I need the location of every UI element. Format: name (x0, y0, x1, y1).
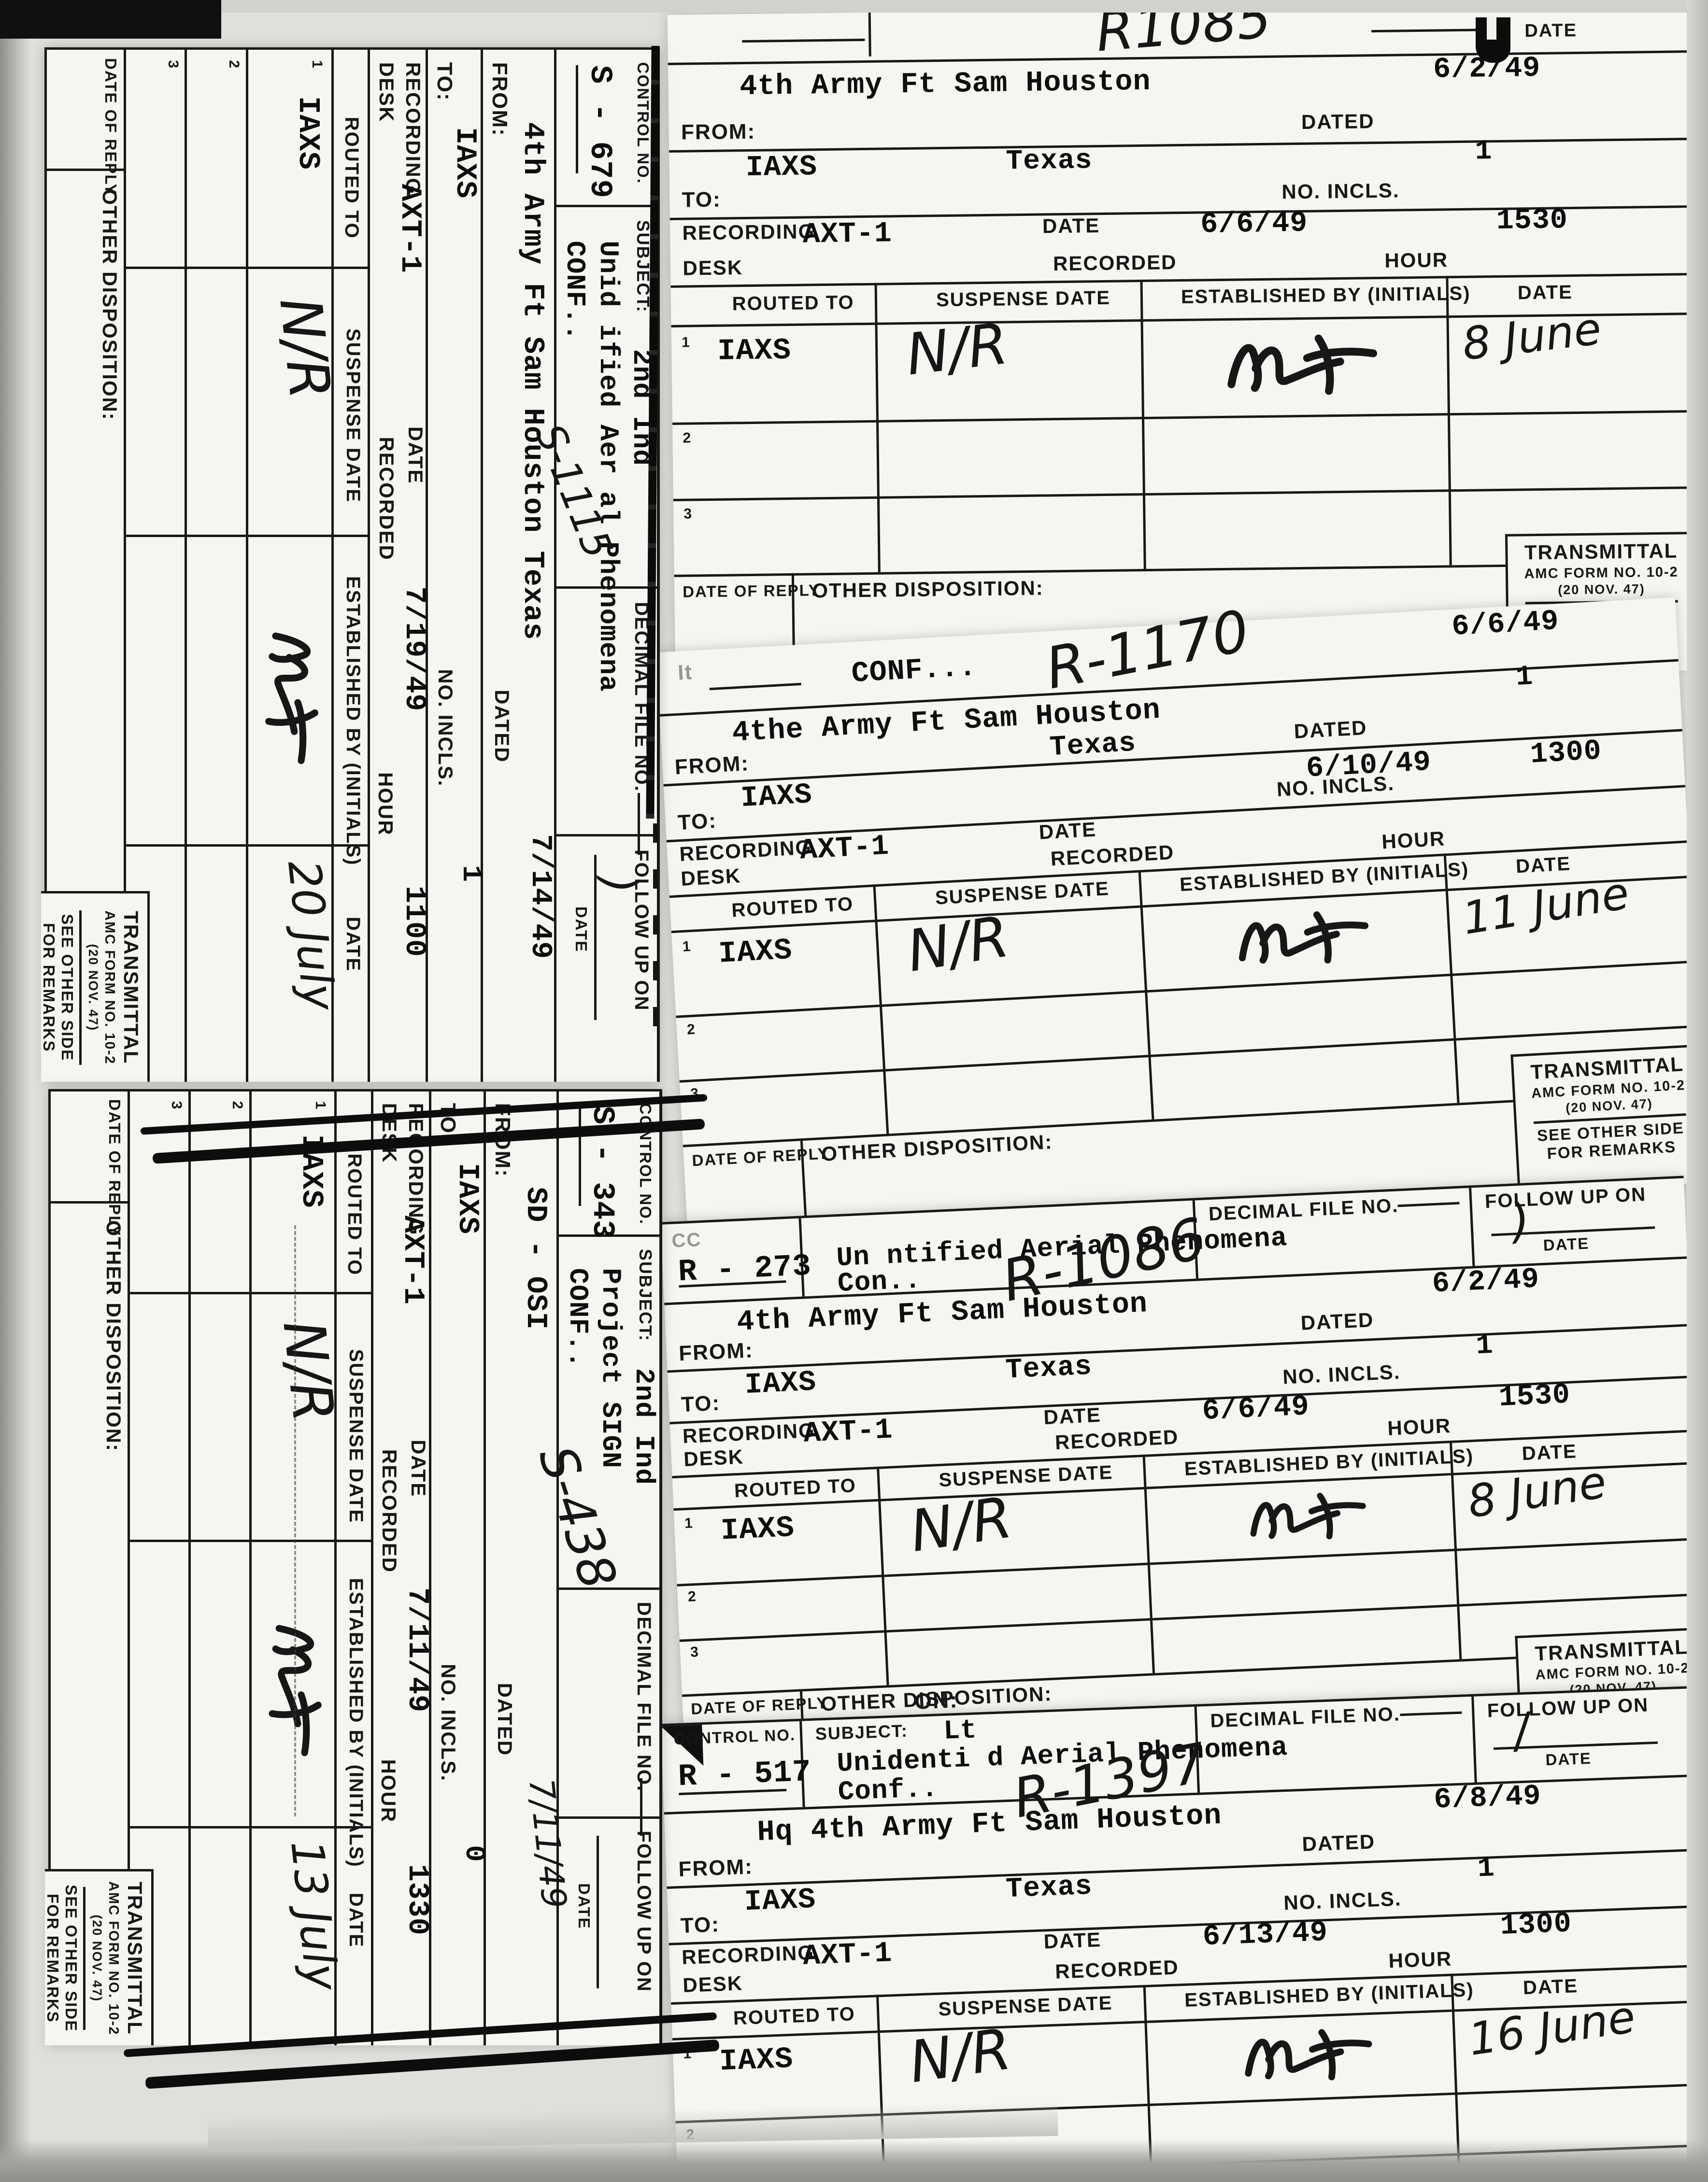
form-row: RECORDINGDESKAXT-1DATERECORDED7/11/49133… (371, 1091, 431, 2045)
signature-initials (1181, 898, 1429, 979)
to-label: TO: (677, 808, 718, 835)
signature-initials (1181, 326, 1427, 407)
routed-to-header: ROUTED TO (732, 292, 854, 315)
top-row-cell-line (1469, 1188, 1475, 1266)
row-number: 1 (682, 938, 692, 955)
rotated-form-wrapper-l2: CONTROL NO.S - 343SUBJECT:2nd IndProject… (48, 1089, 657, 2043)
from-value-line2: Texas (1005, 1871, 1093, 1906)
decimal-file-line (640, 1778, 642, 1836)
subject-line3: CONF... (851, 651, 977, 691)
transmittal-box: TRANSMITTALAMC FORM NO. 10-2(20 NOV. 47)… (1511, 1045, 1707, 1193)
signature-initials (1185, 1482, 1434, 1553)
subject-line3: CONF.. (562, 1268, 593, 1368)
date-of-reply-label: DATE OF REPLY (692, 1144, 830, 1170)
date-label: DATE (1524, 20, 1577, 42)
hour-label: HOUR (1387, 1414, 1452, 1440)
scanned-document-page: R1085DATEFROM:4th Army Ft Sam HoustonDAT… (0, 0, 1708, 2182)
decimal-file-line (1398, 1202, 1459, 1207)
form-row: FROM:4th Army Ft Sam Houston TexasDATED7… (481, 50, 556, 1082)
date-header: DATE (1523, 1975, 1578, 1999)
subject-line2: Unid ified Aer al Phenomena (593, 241, 624, 692)
hour-value: 1300 (1500, 1908, 1572, 1943)
control-no-label: CONTROL NO. (634, 62, 652, 184)
from-label: FROM: (674, 751, 750, 779)
recording-label: RECORDING (681, 1941, 814, 1969)
routed-to-value: IAXS (291, 96, 325, 170)
row-number: 2 (687, 1588, 697, 1605)
control-underline (576, 65, 578, 173)
from-value: 4th Army Ft Sam Houston (740, 66, 1151, 103)
recorded-label: RECORDED (1054, 1956, 1179, 1984)
signature-initials (1185, 2018, 1434, 2094)
band-top-gray (145, 0, 1708, 13)
transmittal-title: TRANSMITTAL (1535, 1635, 1689, 1665)
from-value: Hq 4th Army Ft Sam Houston (756, 1799, 1222, 1849)
routed-to-value: IAXS (718, 933, 793, 971)
date-label: DATE (1545, 1749, 1592, 1769)
hour-label: HOUR (377, 1759, 400, 1823)
established-by-header: ESTABLISHED BY (INITIALS) (342, 576, 364, 866)
from-label: FROM: (681, 120, 756, 145)
transmittal-form-r1: R1085DATEFROM:4th Army Ft Sam HoustonDAT… (668, 2, 1699, 678)
to-label: TO: (680, 1913, 720, 1938)
form-row: ROUTED TOSUSPENSE DATEESTABLISHED BY (IN… (334, 1091, 373, 2045)
row-number: 3 (690, 1644, 699, 1661)
suspense-date-header: SUSPENSE DATE (936, 287, 1110, 311)
suspense-date-header: SUSPENSE DATE (938, 1993, 1113, 2021)
from-label: FROM: (487, 62, 512, 137)
amc-form-number: AMC FORM NO. 10-2 (101, 910, 117, 1064)
form-row: TO:IAXSNO. INCLS.0 (429, 1091, 486, 2045)
date-label: DATE (1039, 818, 1097, 844)
decimal-file-no-label: DECIMAL FILE NO. (633, 1602, 655, 1792)
suspense-date-header: SUSPENSE DATE (345, 1349, 367, 1523)
transmittal-box: TRANSMITTALAMC FORM NO. 10-2(20 NOV. 47)… (45, 1869, 154, 2045)
row-number: 3 (168, 1101, 185, 1110)
desk-label: DESK (680, 864, 741, 891)
band-top-left-black (0, 0, 221, 39)
hour-label: HOUR (1388, 1947, 1452, 1972)
date-recorded-value: 7/11/49 (400, 1587, 433, 1713)
date-label: DATE (1043, 1928, 1102, 1954)
date-label: DATE (407, 1440, 430, 1497)
routed-to-header: ROUTED TO (733, 2003, 855, 2029)
punch-hole-notch (1487, 17, 1496, 40)
dated-value: 6/2/49 (1432, 1263, 1540, 1301)
follow-up-date-line (597, 1836, 599, 1988)
top-row-cell-line (556, 834, 657, 836)
control-fragment: It (677, 660, 694, 685)
other-disposition-label: OTHER DISPOSITION: (821, 1130, 1053, 1166)
form-row: 2 (185, 50, 248, 1082)
established-by-header: ESTABLISHED BY (INITIALS) (345, 1578, 367, 1868)
form-revision-date: (20 NOV. 47) (1558, 581, 1645, 597)
control-no-label: CONTROL NO. (673, 1726, 796, 1748)
form-row: 1IAXSN/R20 July (246, 50, 334, 1082)
transmittal-form-r2: ItCONF...R-11706/6/49FROM:4the Army Ft S… (656, 597, 1707, 1238)
transmittal-title: TRANSMITTAL (123, 1882, 146, 2035)
dated-label: DATED (1300, 1308, 1375, 1335)
date-recorded-value: 7/19/49 (398, 586, 430, 711)
from-value-line2: Texas (1049, 728, 1137, 764)
recording-label: RECORDING (682, 220, 815, 245)
recorded-label: RECORDED (378, 1449, 401, 1573)
desk-label: DESK (683, 1445, 744, 1471)
transmittal-title: TRANSMITTAL (119, 911, 142, 1064)
subject-line2: Project SIGN (595, 1268, 626, 1468)
date-label: DATE (404, 426, 427, 484)
form-revision-date: (20 NOV. 47) (85, 944, 100, 1032)
no-incls-value: 1 (1475, 1330, 1494, 1362)
row-number: 3 (683, 506, 693, 523)
to-value: IAXS (744, 1366, 817, 1402)
control-no-value: S - 679 (582, 65, 617, 198)
row-number: 1 (682, 335, 691, 351)
no-incls-label: NO. INCLS. (1281, 179, 1400, 203)
date-header: DATE (342, 917, 364, 972)
no-incls-label: NO. INCLS. (434, 669, 457, 787)
date-of-reply-label: DATE OF REPLY (683, 581, 820, 601)
decimal-file-no-label: DECIMAL FILE NO. (1210, 1703, 1401, 1732)
transmittal-form-l2: CONTROL NO.S - 343SUBJECT:2nd IndProject… (48, 1089, 662, 2045)
date-header: DATE (1515, 853, 1571, 878)
date-label: DATE (1042, 214, 1100, 238)
other-disposition-label: OTHER DISPOSITION: (98, 189, 121, 420)
no-incls-label: NO. INCLS. (437, 1664, 460, 1782)
form-row: 1IAXSN/R8 June (671, 312, 1693, 425)
row-number: 2 (226, 60, 242, 69)
dated-label: DATED (1302, 1830, 1376, 1856)
no-incls-value: 0 (458, 1845, 489, 1862)
suspense-date-header: SUSPENSE DATE (939, 1462, 1114, 1491)
control-no-value: R - 517 (678, 1755, 812, 1795)
desk-label: DESK (375, 62, 398, 123)
signature-initials (257, 576, 325, 824)
date-of-reply-label: DATE OF REPLY (690, 1694, 828, 1718)
subject-line1: Lt (943, 1714, 978, 1746)
other-disposition-label: OTHER DISPOSITION: (102, 1220, 125, 1452)
control-no-label: CONTROL NO. (636, 1103, 655, 1225)
to-value: IAXS (744, 1884, 816, 1919)
recording-desk-value: AXT-1 (802, 1937, 893, 1973)
reply-divider-line (51, 1201, 130, 1204)
dotted-guide-line (294, 1225, 296, 1817)
top-line-fragment (742, 39, 865, 43)
for-remarks-label: FOR REMARKS (40, 923, 58, 1052)
suspense-date-handwritten: N/R (903, 310, 1011, 388)
from-label: FROM: (678, 1338, 754, 1366)
from-value: 4th Army Ft Sam Houston Texas (516, 122, 549, 640)
control-no-fragment: CC (671, 1229, 702, 1252)
dated-label: DATED (493, 1683, 516, 1757)
from-value-line2: Texas (1006, 145, 1093, 177)
top-row-cell-line (556, 205, 657, 207)
recording-label: RECORDING (682, 1418, 816, 1447)
row-number: 1 (309, 60, 325, 69)
routed-to-header: ROUTED TO (341, 117, 362, 239)
recorded-label: RECORDED (375, 437, 398, 560)
from-value-line2: Texas (1005, 1351, 1093, 1387)
form-row: 2 (672, 410, 1694, 501)
date-header: DATE (1518, 282, 1573, 304)
routed-to-header: ROUTED TO (343, 1153, 365, 1275)
recording-desk-value: AXT-1 (799, 830, 890, 868)
row-number: 1 (684, 1515, 694, 1532)
routed-to-header: ROUTED TO (731, 893, 854, 922)
from-value: SD - OSI (519, 1187, 552, 1330)
see-other-side-label: SEE OTHER SIDE (58, 914, 76, 1061)
date-recorded-value: 6/6/49 (1201, 1390, 1310, 1428)
routed-to-value: IAXS (719, 2042, 794, 2079)
card-edge-dashes (653, 823, 657, 1031)
no-incls-label: NO. INCLS. (1282, 1360, 1401, 1389)
routed-to-header: ROUTED TO (734, 1474, 857, 1502)
control-underline (579, 1106, 581, 1206)
dated-value: 6/6/49 (1451, 605, 1560, 643)
recording-label: RECORDING (401, 62, 425, 195)
no-incls-value: 1 (1477, 1853, 1495, 1884)
to-label: TO: (681, 1391, 721, 1417)
hour-value: 1330 (400, 1864, 433, 1936)
page-right-edge (1687, 0, 1708, 2182)
row-number: 1 (312, 1101, 328, 1110)
hour-label: HOUR (1384, 249, 1448, 273)
decimal-file-line (638, 793, 640, 855)
to-value: IAXS (451, 1163, 484, 1234)
dated-label: DATED (1301, 110, 1375, 134)
date-label: DATE (572, 907, 590, 952)
top-row-cell-line (559, 1816, 659, 1819)
routed-to-value: IAXS (717, 333, 792, 368)
suspense-date-handwritten: N/R (905, 2015, 1015, 2096)
subject-line3: CONF.. (559, 241, 590, 341)
transmittal-form-l1: CONTROL NO.S - 679SUBJECT:2nd IndUnid if… (44, 47, 660, 1082)
dated-value: 7/14/49 (524, 834, 556, 959)
form-row: 1IAXSN/R13 July (249, 1091, 337, 2045)
recording-desk-value: AXT-1 (803, 1414, 894, 1451)
form-row: DATE OF REPLYOTHER DISPOSITION:TRANSMITT… (51, 1091, 130, 2045)
hour-label: HOUR (1381, 827, 1446, 854)
page-left-edge (0, 0, 31, 2182)
recording-desk-value: AXT-1 (802, 218, 892, 252)
to-label: TO: (682, 187, 721, 212)
date-of-reply-label: DATE OF REPLY (101, 58, 120, 196)
recorded-label: RECORDED (1054, 1425, 1179, 1454)
recording-desk-value: AXT-1 (396, 1216, 429, 1305)
form-row: DATE OF REPLYOTHER DISPOSITION:TRANSMITT… (47, 50, 126, 1082)
date-recorded-value: 6/10/49 (1305, 746, 1432, 786)
top-tick-line (868, 9, 871, 57)
hour-value: 1300 (1529, 735, 1602, 771)
recording-label: RECORDING (679, 836, 812, 866)
hour-value: 1100 (398, 886, 430, 957)
rotated-form-wrapper-l1: CONTROL NO.S - 679SUBJECT:2nd IndUnid if… (44, 47, 655, 1079)
transmittal-box: TRANSMITTALAMC FORM NO. 10-2(20 NOV. 47)… (41, 891, 150, 1082)
suspense-date-handwritten: N/R (267, 294, 344, 402)
hour-label: HOUR (374, 772, 397, 836)
amc-form-number: AMC FORM NO. 10-2 (1524, 564, 1679, 582)
dated-value: 6/8/49 (1433, 1780, 1541, 1817)
transmittal-divider (79, 910, 82, 1065)
date-label: DATE (1043, 1403, 1101, 1429)
from-label: FROM: (678, 1855, 754, 1882)
date-label: DATE (575, 1883, 593, 1929)
top-row-cell-line (1471, 1697, 1477, 1783)
no-incls-label: NO. INCLS. (1283, 1887, 1402, 1915)
recorded-label: RECORDED (1050, 841, 1175, 871)
decimal-file-no-label: DECIMAL FILE NO. (1208, 1195, 1399, 1225)
for-remarks-label: FOR REMARKS (43, 1894, 62, 2023)
date-recorded-value: 6/13/49 (1202, 1916, 1328, 1954)
other-disposition-label: OTHER DISPOSITION: (812, 577, 1044, 603)
suspense-date-header: SUSPENSE DATE (935, 878, 1110, 909)
subject-label: SUBJECT: (635, 1249, 655, 1342)
to-value: IAXS (740, 779, 813, 815)
date-header: DATE (345, 1893, 367, 1948)
reply-divider-line (47, 169, 126, 171)
see-other-side-label: SEE OTHER SIDE (62, 1884, 80, 2032)
to-label: TO: (432, 62, 456, 101)
desk-label: DESK (683, 1972, 743, 1998)
transmittal-divider (83, 1887, 85, 2030)
form-row: ROUTED TOSUSPENSE DATEESTABLISHED BY (IN… (331, 50, 370, 1082)
hour-value: 1530 (1496, 204, 1568, 238)
no-incls-value: 1 (1515, 661, 1534, 694)
decimal-file-line (1400, 1712, 1462, 1716)
suspense-date-header: SUSPENSE DATE (342, 328, 364, 503)
control-line-fragment (709, 683, 801, 690)
desk-label: DESK (683, 256, 743, 280)
date-of-reply-label: DATE OF REPLY (105, 1099, 124, 1237)
hour-value: 1530 (1498, 1379, 1571, 1415)
follow-up-on-label: FOLLOW UP ON (633, 1831, 655, 1992)
amc-form-number: AMC FORM NO. 10-2 (105, 1881, 121, 2035)
row-number: 2 (683, 430, 692, 446)
form-row: FROM:4th Army Ft Sam HoustonDATED6/2/49 (668, 50, 1689, 153)
form-row: CONTROL NO.S - 679SUBJECT:2nd IndUnid if… (554, 50, 657, 1082)
established-by-header: ESTABLISHED BY (INITIALS) (1181, 283, 1471, 308)
subject-label: SUBJECT: (815, 1721, 908, 1744)
row-number: 2 (229, 1101, 245, 1110)
subject-line1: 2nd Ind (628, 1368, 659, 1485)
form-revision-date: (20 NOV. 47) (89, 1915, 104, 2002)
disposition-fragment: ON: (914, 1686, 959, 1714)
dated-label: DATED (490, 690, 513, 763)
no-incls-value: 1 (1475, 136, 1493, 168)
dated-label: DATED (1294, 716, 1368, 743)
row-number: 2 (686, 1021, 696, 1038)
to-value: IAXS (746, 151, 818, 185)
no-incls-value: 1 (455, 865, 486, 882)
form-row: FROM:SD - OSIDATED7/11/49 (484, 1091, 559, 2045)
transmittal-form-r3: CCR - 273Un ntified Aerial PhenomenaCon.… (661, 1176, 1708, 1765)
form-row: RECORDINGDESKAXT-1DATERECORDED7/19/49110… (368, 50, 428, 1082)
row-number: 3 (165, 60, 181, 69)
suspense-date-handwritten: N/R (270, 1317, 347, 1425)
form-row: 2 (188, 1091, 252, 2045)
date-label: DATE (1543, 1234, 1590, 1255)
routed-to-value: IAXS (720, 1510, 795, 1548)
form-row: TO:IAXSNO. INCLS.1 (426, 50, 483, 1082)
recorded-label: RECORDED (1053, 251, 1177, 275)
to-value: IAXS (448, 127, 481, 198)
established-by-header: ESTABLISHED BY (INITIALS) (1184, 1979, 1475, 2012)
date-recorded-value: 6/6/49 (1200, 207, 1308, 241)
transmittal-title: TRANSMITTAL (1524, 539, 1678, 564)
recording-desk-value: AXT-1 (393, 184, 426, 273)
